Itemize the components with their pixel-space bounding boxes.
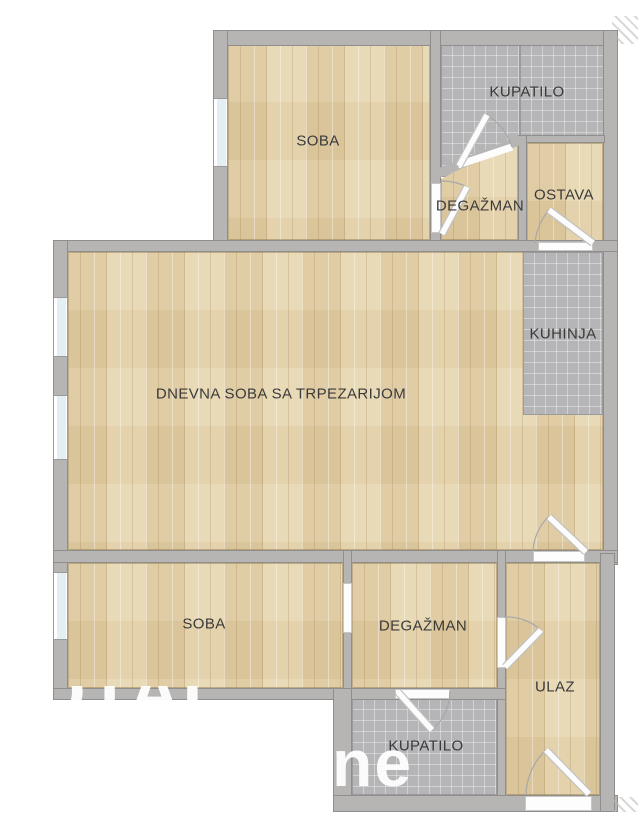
- wall-top: [213, 30, 618, 46]
- window-living-1: [53, 297, 68, 357]
- floor-plan: TOTAL ne SOBA KUPATILO DEGAŽMAN OSTAVA K…: [0, 0, 638, 825]
- wall-under-kupatilo-top: [518, 135, 605, 143]
- wall-kupatilo-bottom-west: [333, 688, 352, 812]
- wall-ostava-west: [518, 135, 527, 252]
- room-label-ostava: OSTAVA: [534, 187, 594, 204]
- room-label-dnevna-soba: DNEVNA SOBA SA TRPEZARIJOM: [156, 386, 406, 403]
- room-label-ulaz: ULAZ: [535, 679, 575, 696]
- door-opening-entrance: [525, 796, 592, 811]
- room-label-soba-bottom: SOBA: [182, 616, 225, 633]
- window-living-2: [53, 395, 68, 460]
- wall-mid-band: [53, 240, 618, 252]
- room-label-kuhinja: KUHINJA: [530, 326, 597, 343]
- wall-ulaz-east: [600, 553, 615, 812]
- wall-right-outer: [603, 30, 618, 565]
- room-label-soba-top: SOBA: [296, 133, 339, 150]
- wall-ulaz-west: [497, 550, 506, 812]
- window-soba-bottom: [53, 572, 68, 640]
- door-opening-kupatilo-bottom: [395, 689, 450, 699]
- room-label-kupatilo-top: KUPATILO: [489, 84, 564, 101]
- door-opening-ulaz-degazman: [497, 617, 506, 668]
- hatch-mark-bottom-right: [614, 797, 638, 812]
- room-label-kupatilo-bottom: KUPATILO: [388, 738, 463, 755]
- door-opening-ostava: [538, 242, 593, 251]
- door-opening-soba-bottom: [343, 583, 352, 633]
- room-label-degazman-top: DEGAŽMAN: [436, 198, 524, 215]
- hatch-mark-top-right: [612, 16, 638, 44]
- room-label-degazman-bottom: DEGAŽMAN: [379, 618, 467, 635]
- door-opening-ulaz-living: [533, 551, 585, 562]
- window-soba-top: [213, 98, 228, 167]
